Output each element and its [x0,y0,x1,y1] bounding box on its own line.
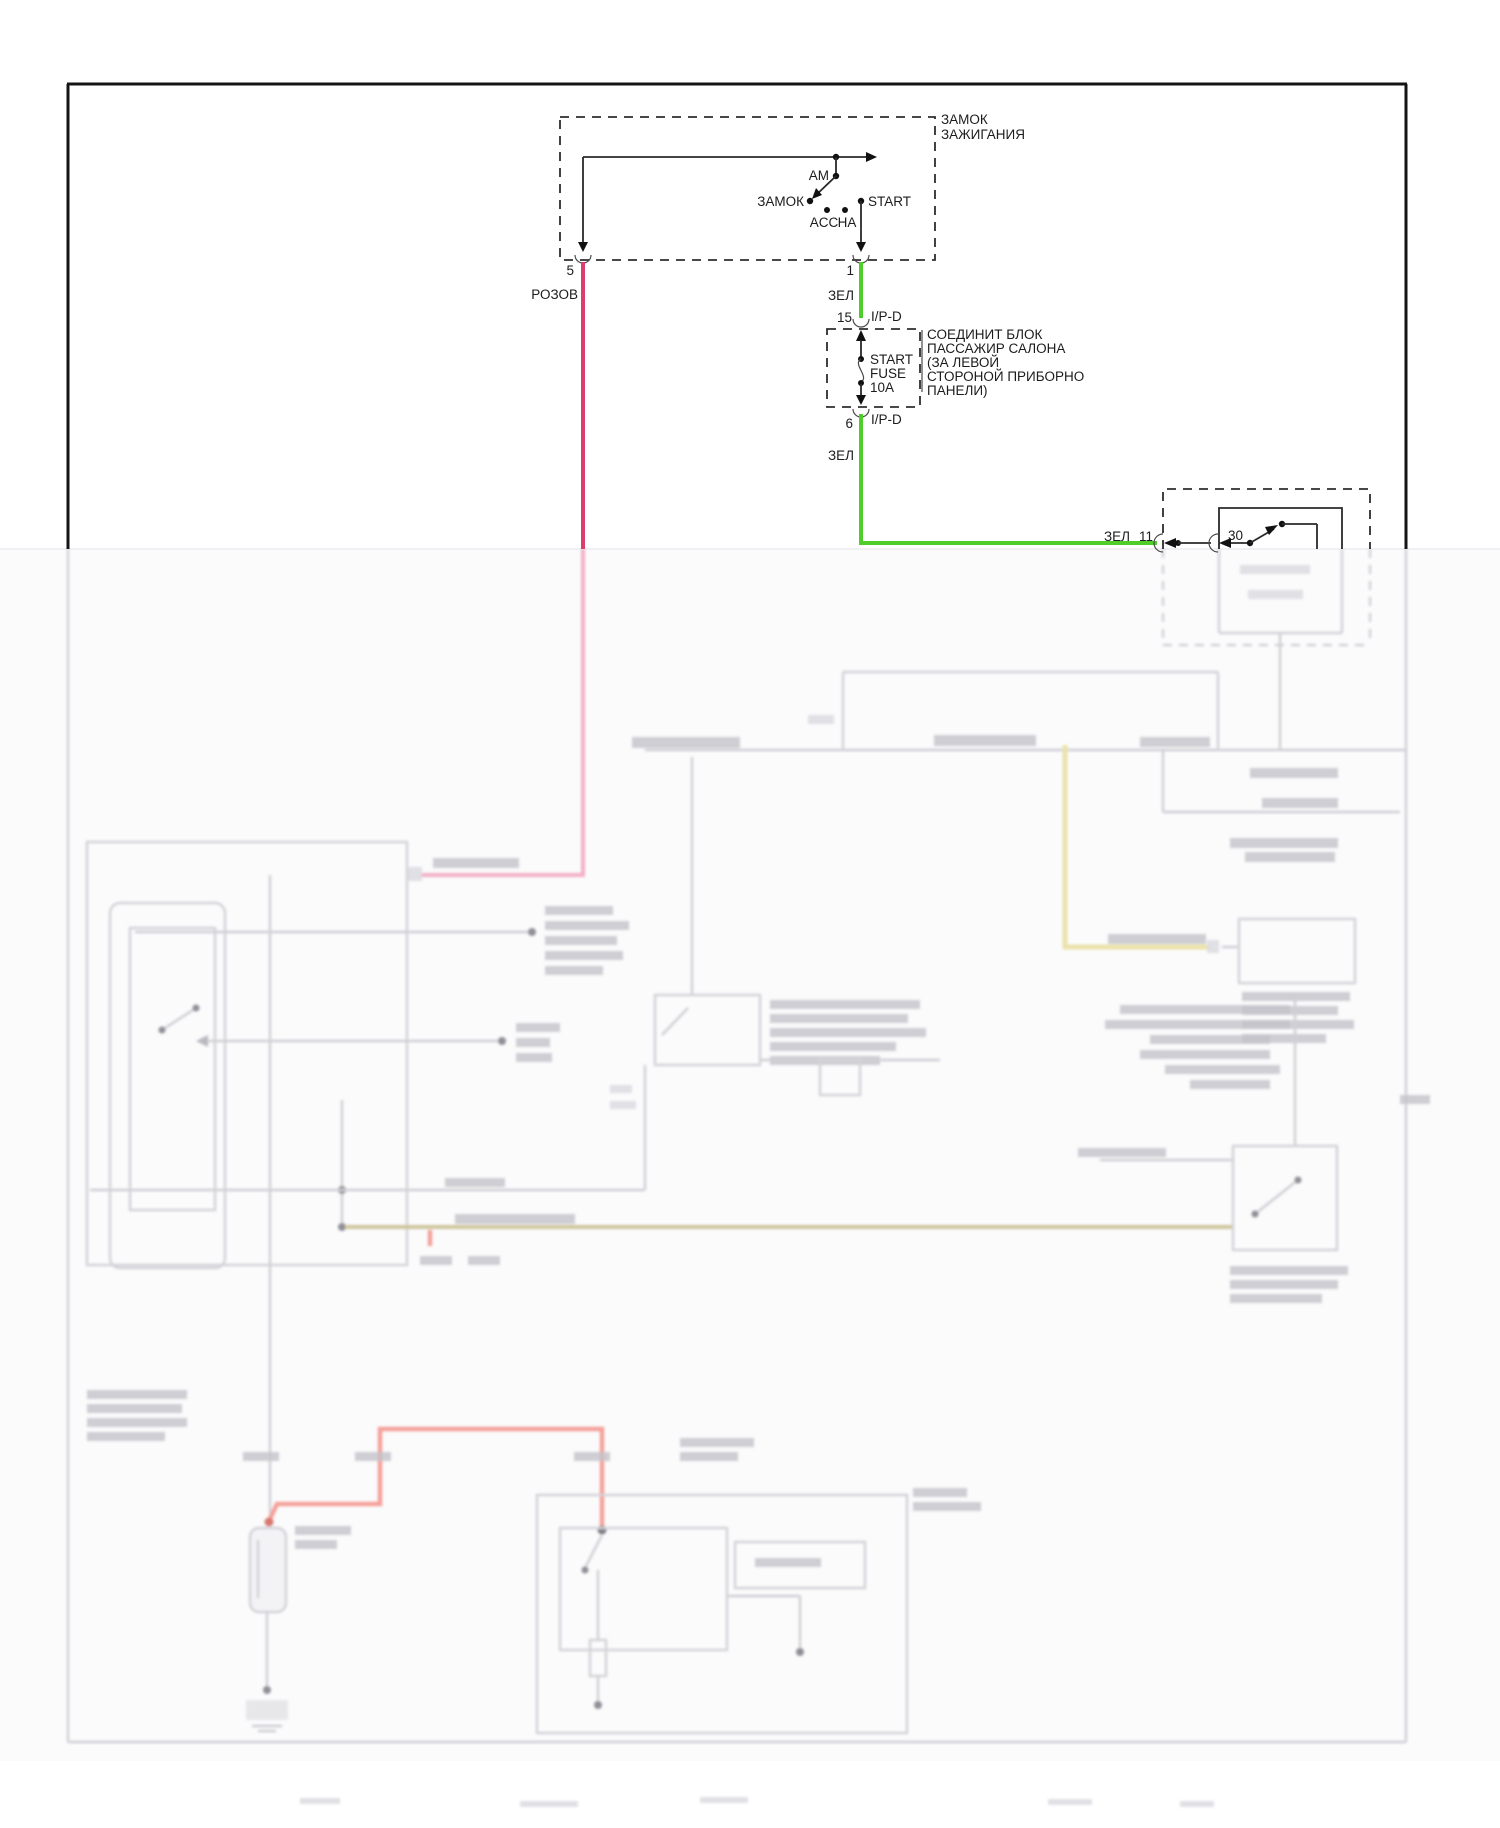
fuse-note-line1: СОЕДИНИТ БЛОК [927,327,1042,342]
arrow-down-icon [578,242,588,252]
arrow-up-icon [856,330,866,341]
pin-11-label: 11 [1139,529,1153,544]
fuse-element-icon [858,359,863,382]
terminal-lock-dot [807,198,813,204]
arrow-right-icon [866,152,877,162]
wiring-diagram: ЗАМОК ЗАЖИГАНИЯ AM ЗАМОК START ACC НА 5 … [0,0,1500,1828]
pin-1-label: 1 [846,263,854,278]
fuse-note-line2: ПАССАЖИР САЛОНА [927,341,1065,356]
relay-dashed-outline [1163,489,1370,549]
arrow-down-icon [856,395,866,405]
terminal-ha-label: НА [838,215,857,230]
pink-wire-label: РОЗОВ [531,287,578,302]
connector-ipd-out-label: I/P-D [871,412,902,427]
connector-ipd-in-label: I/P-D [871,309,902,324]
pin-30-label: 30 [1228,528,1243,543]
fuse-note-line5: ПАНЕЛИ) [927,383,988,398]
ignition-switch-outline [560,117,935,260]
starter-relay-box: ЗЕЛ 11 30 [1104,489,1370,552]
pink-wire: РОЗОВ [531,262,583,549]
terminal-lock-label: ЗАМОК [757,194,804,209]
connector-pin1-icon [853,255,869,263]
connector-pin5-icon [575,255,591,263]
terminal-acc-label: ACC [810,215,839,230]
green-wire-label-right: ЗЕЛ [1104,529,1130,544]
footer-ghost-marks [300,1797,1214,1807]
pin-5-label: 5 [566,263,574,278]
terminal-am-label: AM [809,168,829,183]
start-fuse-block: ЗЕЛ 15 I/P-D START FUSE 10A СОЕДИНИТ БЛО… [827,262,1084,431]
connector-pin15-icon [853,319,869,327]
fuse-name-line2: FUSE [870,366,906,381]
wiring-diagram-page: ЗАМОК ЗАЖИГАНИЯ AM ЗАМОК START ACC НА 5 … [0,0,1500,1828]
page-border [67,84,1407,549]
ignition-title-line2: ЗАЖИГАНИЯ [941,127,1025,142]
terminal-acc-dot [824,207,830,213]
fuse-note-line4: СТОРОНОЙ ПРИБОРНО [927,369,1084,384]
terminal-start-label: START [868,194,911,209]
fuse-name-line1: START [870,352,913,367]
pin-6-label: 6 [845,416,853,431]
terminal-ha-dot [842,207,848,213]
arrow-left-icon [1164,538,1176,548]
green-wire-label-top: ЗЕЛ [828,288,854,303]
green-wire-label-mid: ЗЕЛ [828,448,854,463]
fuse-rating-label: 10A [870,380,894,395]
pin-15-label: 15 [837,310,852,325]
arrow-down-icon [856,242,866,252]
ignition-switch-box: ЗАМОК ЗАЖИГАНИЯ AM ЗАМОК START ACC НА 5 … [560,112,1025,278]
ignition-title-line1: ЗАМОК [941,112,988,127]
fuse-note-line3: (ЗА ЛЕВОЙ [927,355,999,370]
green-wire: ЗЕЛ [828,414,1157,543]
